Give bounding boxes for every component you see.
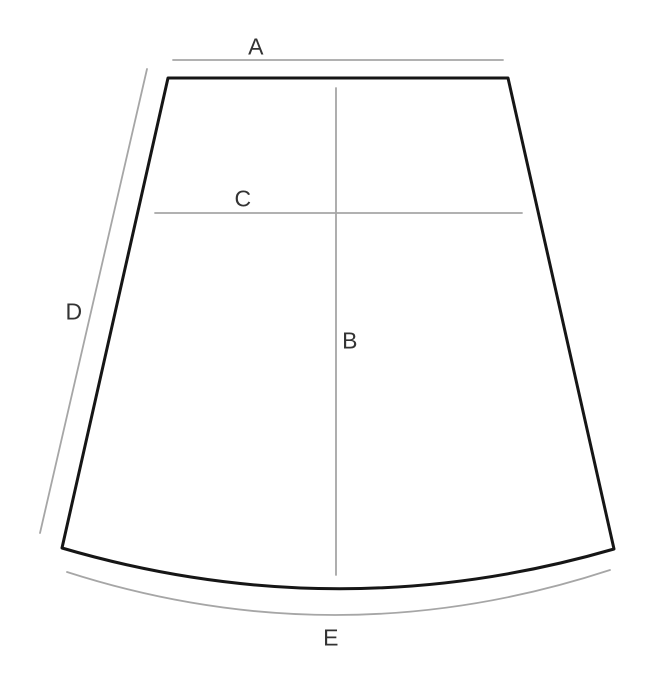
label-a: A: [248, 34, 264, 61]
label-e: E: [323, 625, 339, 652]
label-b: B: [342, 328, 358, 355]
measure-line-e: [67, 570, 610, 615]
skirt-measurement-diagram: A B C D E: [0, 0, 658, 674]
label-d: D: [65, 299, 82, 326]
diagram-artwork: [0, 0, 658, 674]
label-c: C: [234, 186, 251, 213]
skirt-outline: [62, 78, 614, 589]
measure-line-d: [40, 69, 147, 533]
